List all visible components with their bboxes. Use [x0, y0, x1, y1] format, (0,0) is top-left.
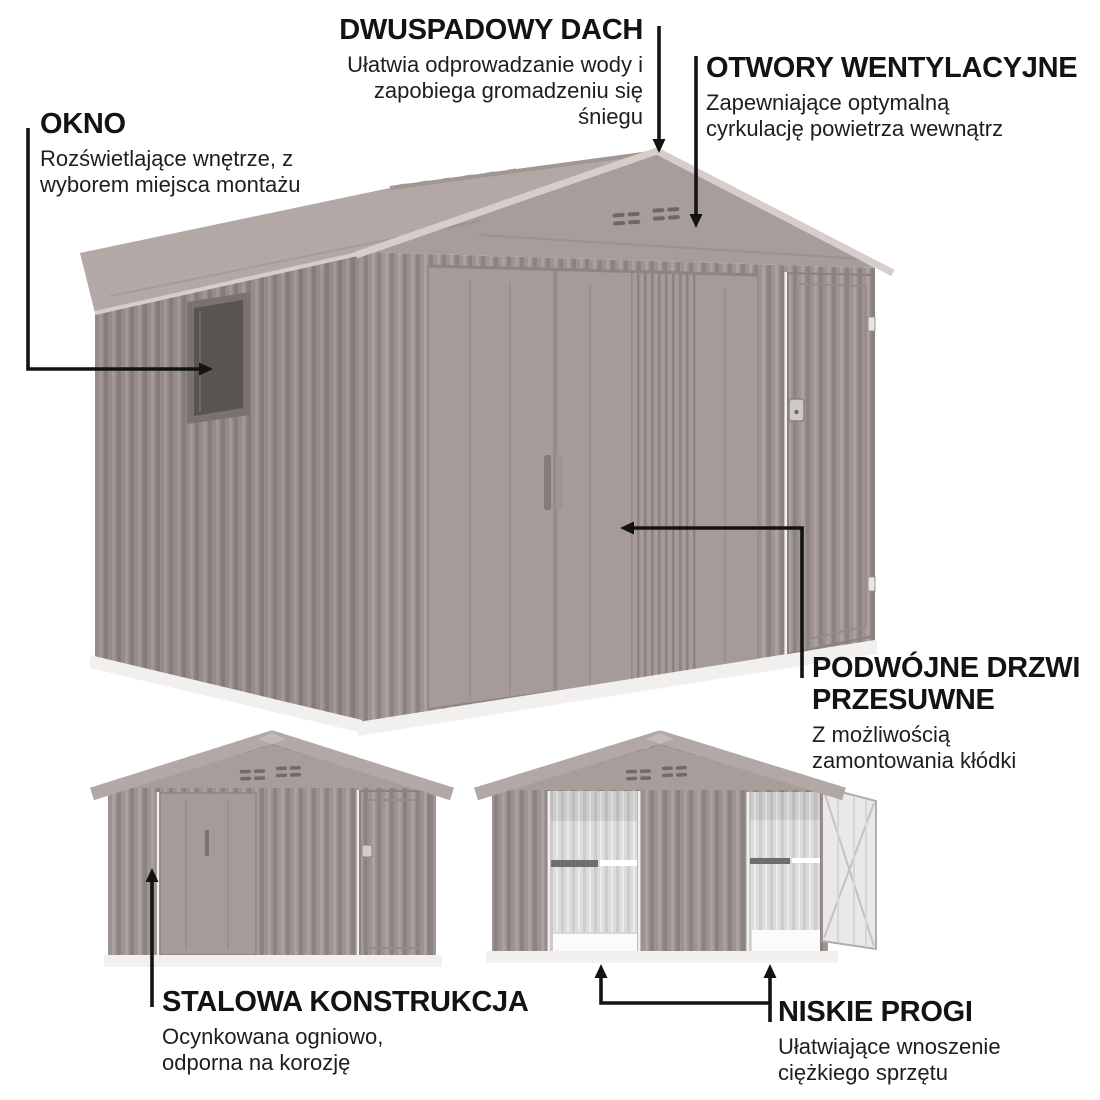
thresholds-annotation-desc: Ułatwiające wnoszenie ciężkiego sprzętu: [778, 1034, 1001, 1086]
steel-annotation-desc-line: Ocynkowana ogniowo,: [162, 1024, 528, 1050]
sliding-door-handle-left: [544, 455, 551, 510]
right-doorway-rail: [750, 858, 790, 864]
steel-annotation-desc-line: odporna na korozję: [162, 1050, 528, 1076]
closed-shed-illustration: [92, 733, 452, 967]
window-annotation-desc-line: wyborem miejsca montażu: [40, 172, 300, 198]
window-glass: [194, 300, 243, 416]
steel-annotation-title: STALOWA KONSTRUKCJA: [162, 986, 528, 1018]
closed-shed-base: [104, 955, 442, 963]
roof-annotation-title: DWUSPADOWY DACH: [339, 14, 643, 46]
vents-annotation-desc-line: cyrkulację powietrza wewnątrz: [706, 116, 1077, 142]
vents-annotation-desc-line: Zapewniające optymalną: [706, 90, 1077, 116]
doors-annotation-title: PODWÓJNE DRZWI PRZESUWNE: [812, 652, 1100, 716]
right-doorway-floor: [752, 930, 820, 952]
roof-annotation: DWUSPADOWY DACH Ułatwia odprowadzanie wo…: [339, 14, 643, 130]
closed-shed-hinged-handle: [362, 845, 372, 857]
sliding-door-right: [556, 269, 632, 691]
thresholds-annotation-title: NISKIE PROGI: [778, 996, 1001, 1028]
thresholds-arrow: [595, 964, 777, 1022]
roof-annotation-desc-line: Ułatwia odprowadzanie wody i: [339, 52, 643, 78]
roof-annotation-desc: Ułatwia odprowadzanie wody i zapobiega g…: [339, 52, 643, 130]
thresholds-annotation-desc-line: Ułatwiające wnoszenie: [778, 1034, 1001, 1060]
thresholds-annotation-desc-line: ciężkiego sprzętu: [778, 1060, 1001, 1086]
sliding-door-rib-section: [632, 271, 695, 681]
roof-arrow: [653, 26, 666, 153]
roof-annotation-desc-line: śniegu: [339, 104, 643, 130]
doors-annotation: PODWÓJNE DRZWI PRZESUWNE Z możliwością z…: [812, 652, 1100, 774]
doors-annotation-desc: Z możliwością zamontowania kłódki: [812, 722, 1100, 774]
steel-annotation-desc: Ocynkowana ogniowo, odporna na korozję: [162, 1024, 528, 1076]
vents-annotation-desc: Zapewniające optymalną cyrkulację powiet…: [706, 90, 1077, 142]
closed-shed-sliding-doors: [160, 793, 256, 955]
hinged-door-hinge-top: [868, 317, 875, 331]
vents-annotation-title: OTWORY WENTYLACYJNE: [706, 52, 1077, 84]
roof-annotation-desc-line: zapobiega gromadzeniu się: [339, 78, 643, 104]
thresholds-annotation: NISKIE PROGI Ułatwiające wnoszenie ciężk…: [778, 996, 1001, 1086]
closed-shed-hinged-door: [360, 791, 428, 957]
doors-annotation-desc-line: Z możliwością: [812, 722, 1100, 748]
open-shed-base: [486, 951, 838, 959]
doors-annotation-desc-line: zamontowania kłódki: [812, 748, 1100, 774]
vents-annotation: OTWORY WENTYLACYJNE Zapewniające optymal…: [706, 52, 1077, 142]
window-annotation-desc: Rozświetlające wnętrze, z wyborem miejsc…: [40, 146, 300, 198]
closed-shed-door-handle: [205, 830, 209, 856]
window-annotation-title: OKNO: [40, 108, 300, 140]
main-shed-illustration: [80, 151, 893, 736]
window-annotation: OKNO Rozświetlające wnętrze, z wyborem m…: [40, 108, 300, 198]
left-doorway-rail: [551, 860, 598, 867]
steel-annotation: STALOWA KONSTRUKCJA Ocynkowana ogniowo, …: [162, 986, 528, 1076]
shed-feature-infographic: DWUSPADOWY DACH Ułatwia odprowadzanie wo…: [0, 0, 1100, 1100]
sliding-door-smooth-section: [695, 273, 758, 673]
window-annotation-desc-line: Rozświetlające wnętrze, z: [40, 146, 300, 172]
sliding-door-handle-right: [556, 455, 563, 510]
hinged-door-hinge-bottom: [868, 577, 875, 591]
sliding-door-left: [428, 266, 554, 709]
